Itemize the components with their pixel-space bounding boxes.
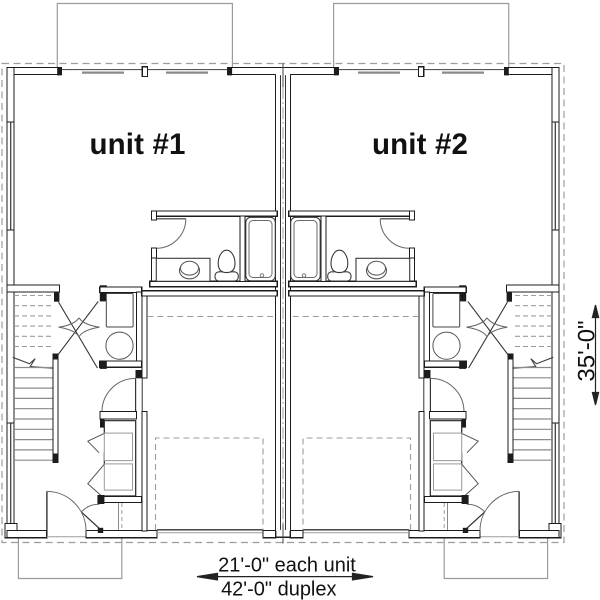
svg-text:unit #2: unit #2 bbox=[372, 128, 468, 161]
svg-text:21'-0" each unit: 21'-0" each unit bbox=[218, 555, 356, 577]
svg-text:unit #1: unit #1 bbox=[89, 128, 185, 161]
svg-text:42'-0" duplex: 42'-0" duplex bbox=[221, 579, 336, 600]
